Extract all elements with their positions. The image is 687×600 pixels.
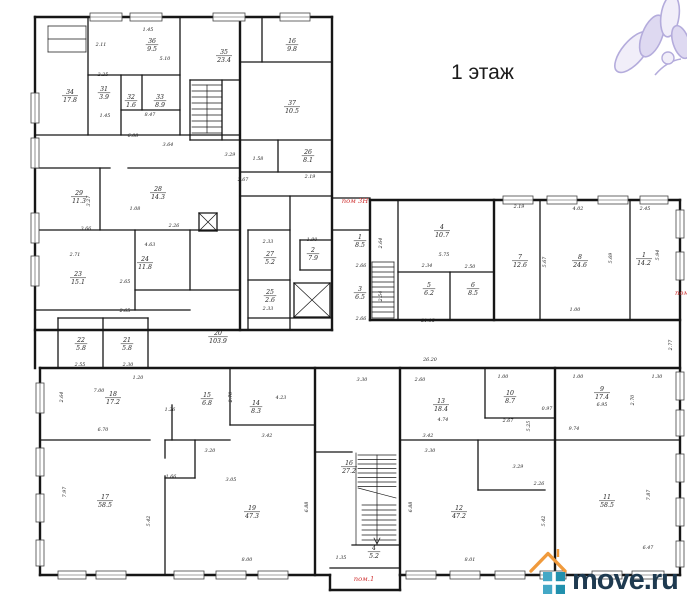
dimension-label: 6.88 [408, 502, 414, 513]
room-label: 18.5 [354, 234, 367, 249]
room-number: 17 [101, 494, 109, 501]
dimension-label: 2.33 [262, 306, 274, 312]
room-number: 35 [220, 49, 228, 56]
dimension-label: 8.01 [465, 557, 476, 563]
dimension-label: 2.60 [414, 377, 426, 383]
room-area: 12.6 [513, 262, 527, 269]
room-label: 27.9 [307, 247, 320, 262]
dimension-label: 5.42 [146, 516, 152, 527]
dimension-label: 3.29 [513, 464, 524, 470]
dimension-label: 5.67 [542, 256, 548, 268]
room-label: 275.2 [264, 251, 277, 266]
dimension-label: 2.54 [378, 291, 384, 303]
dimension-label: 2.66 [355, 316, 367, 322]
dimension-label: 2.65 [119, 308, 131, 314]
dimension-label: 1.00 [573, 374, 584, 380]
dimension-label: 8.47 [145, 112, 157, 118]
dimension-label: 2.70 [630, 395, 636, 407]
room-area: 7.9 [308, 255, 318, 262]
room-area: 11.3 [72, 198, 86, 205]
dimension-label: 3.42 [423, 433, 434, 439]
dimension-label: 1.45 [100, 113, 111, 119]
dimension-label: 4.23 [275, 395, 287, 401]
floor-plan-page: 1 этаж 369.53523.4169.83417.8313.9321.63… [0, 0, 687, 600]
move-ru-logo-text: move.ru [572, 564, 678, 596]
dimension-label: 6.70 [98, 427, 109, 433]
room-number: 14 [252, 400, 260, 407]
room-label: 20103.9 [208, 330, 228, 345]
room-number: 19 [248, 505, 256, 512]
room-label: 3417.8 [62, 89, 78, 104]
room-area: 5.2 [265, 259, 275, 266]
room-number: 11 [603, 494, 611, 501]
move-ru-logo: move.ru [531, 549, 678, 596]
room-label: 108.7 [504, 390, 517, 405]
room-area: 103.9 [209, 338, 227, 345]
room-area: 17.8 [63, 97, 77, 104]
room-area: 18.4 [434, 406, 448, 413]
dimension-label: 0.97 [542, 406, 554, 412]
room-number: 1 [642, 252, 646, 259]
dimension-label: 2.34 [421, 263, 433, 269]
dimension-label: 2.11 [95, 42, 107, 48]
dimension-label: 2.26 [168, 223, 180, 229]
flower-watermark [609, 0, 687, 78]
dimension-label: 5.75 [439, 252, 450, 258]
dimension-label: 1.08 [130, 206, 141, 212]
room-label: 369.5 [146, 38, 159, 53]
room-label: 1758.5 [97, 494, 113, 509]
room-label: 1817.2 [105, 391, 121, 406]
room-number: 27 [265, 251, 274, 258]
room-label: 2814.3 [150, 186, 166, 201]
room-label: 148.3 [250, 400, 263, 415]
dimension-label: 3.05 [226, 477, 237, 483]
room-area: 8.3 [251, 408, 261, 415]
room-number: 21 [122, 337, 131, 344]
room-area: 8.1 [303, 157, 313, 164]
room-area: 47.3 [244, 513, 259, 520]
room-number: 29 [74, 190, 83, 197]
floor-plan-svg: 1 этаж 369.53523.4169.83417.8313.9321.63… [0, 0, 687, 600]
dimension-label: 2.64 [378, 238, 384, 250]
dimension-label: 4.02 [572, 206, 584, 212]
dimension-label: 2.26 [533, 481, 545, 487]
room-label: 225.8 [75, 337, 88, 352]
room-number: 20 [213, 330, 222, 337]
dimension-label: 1.45 [143, 27, 154, 33]
room-label: 313.9 [98, 86, 111, 101]
room-number: 13 [437, 398, 445, 405]
room-label: 1318.4 [433, 398, 449, 413]
floor-title: 1 этаж [451, 61, 514, 84]
room-number: 34 [66, 89, 74, 96]
dimension-label: 1.90 [307, 237, 318, 243]
room-area: 9.5 [147, 46, 157, 53]
room-area: 23.4 [216, 57, 231, 64]
stair-line [374, 538, 377, 544]
room-number: 25 [265, 289, 274, 296]
dimension-label: 2.66 [355, 263, 367, 269]
room-area: 5.8 [76, 345, 86, 352]
squares-icon [543, 572, 565, 594]
dimension-label: 2.70 [228, 392, 234, 404]
roof-icon [531, 554, 565, 572]
dimension-label: 2.65 [119, 279, 131, 285]
room-label: 114.2 [636, 252, 652, 267]
room-area: 17.2 [106, 399, 120, 406]
room-number: 7 [518, 254, 522, 261]
dimension-label: 5.94 [655, 250, 661, 261]
dimension-label: 2.77 [668, 339, 674, 352]
room-area: 6.2 [424, 290, 434, 297]
room-number: 6 [471, 282, 475, 289]
room-label: 268.1 [302, 149, 315, 164]
dimension-label: 7.00 [94, 388, 105, 394]
dimension-label: 6.47 [643, 545, 655, 551]
room-area: 24.6 [572, 262, 587, 269]
room-area: 8.5 [355, 242, 365, 249]
room-label: 56.2 [423, 282, 436, 297]
room-area: 2.6 [264, 297, 275, 304]
room-label: 1158.5 [599, 494, 615, 509]
dimension-label: 2.71 [69, 252, 81, 258]
dimension-label: 9.74 [569, 426, 580, 432]
room-label: 824.6 [572, 254, 588, 269]
dimension-label: 4.63 [144, 242, 156, 248]
dimension-label: 3.20 [205, 448, 216, 454]
room-area: 8.7 [505, 398, 515, 405]
room-number: 16 [288, 38, 296, 45]
room-number: 32 [127, 94, 135, 101]
red-annotation: пом 3Н [342, 197, 370, 205]
room-number: 4 [371, 545, 376, 552]
dimension-label: 2.25 [97, 72, 109, 78]
room-area: 8.9 [155, 102, 165, 109]
room-label: 252.6 [264, 289, 277, 304]
dimension-label: 7.87 [646, 489, 652, 501]
dimension-label: 1.58 [253, 156, 264, 162]
room-number: 31 [100, 86, 108, 93]
dimension-label: 2.33 [262, 239, 274, 245]
room-area: 6.5 [355, 294, 365, 301]
room-area: 3.9 [99, 94, 109, 101]
room-area: 15.1 [71, 279, 85, 286]
room-area: 47.2 [451, 513, 466, 520]
dimension-label: 2.67 [237, 177, 250, 183]
dimension-labels: 1.452.115.102.251.458.476.083.643.291.58… [59, 27, 674, 563]
dimension-label: 4.74 [437, 417, 449, 423]
dimension-label: 1.35 [336, 555, 347, 561]
room-area: 27.2 [341, 468, 356, 475]
room-number: 3 [358, 286, 362, 293]
stair-line [377, 538, 380, 544]
dimension-label: 3.42 [262, 433, 273, 439]
room-label: 68.5 [467, 282, 480, 297]
room-number: 28 [153, 186, 162, 193]
room-label: 215.8 [121, 337, 134, 352]
dimension-label: 2.64 [59, 392, 65, 404]
red-annotation: пом [675, 289, 687, 297]
room-number: 9 [600, 386, 604, 393]
dimension-label: 21.15 [420, 318, 435, 324]
dimension-label: 7.97 [62, 486, 68, 498]
dimension-label: 5.69 [608, 253, 614, 264]
dimension-label: 8.00 [242, 557, 253, 563]
room-label: 36.5 [354, 286, 367, 301]
dimension-label: 6.08 [128, 133, 139, 139]
room-area: 6.8 [202, 400, 212, 407]
room-number: 16 [345, 460, 353, 467]
room-number: 10 [506, 390, 514, 397]
room-area: 1.6 [126, 102, 136, 109]
room-label: 3710.5 [284, 100, 300, 115]
dimension-label: 1.26 [165, 407, 176, 413]
room-area: 14.2 [637, 260, 651, 267]
dimension-label: 5.25 [526, 421, 532, 432]
room-number: 33 [156, 94, 164, 101]
room-label: 321.6 [125, 94, 138, 109]
room-label: 1947.3 [244, 505, 260, 520]
room-number: 24 [140, 256, 149, 263]
room-label: 156.8 [201, 392, 214, 407]
room-number: 22 [76, 337, 85, 344]
room-label: 3523.4 [216, 49, 232, 64]
room-area: 5.2 [369, 553, 379, 560]
room-number: 12 [455, 505, 463, 512]
dimension-label: 1.00 [498, 374, 509, 380]
dimension-label: 1.66 [166, 474, 177, 480]
room-label: 45.2 [368, 545, 381, 560]
dimension-label: 3.30 [357, 377, 368, 383]
room-number: 5 [427, 282, 431, 289]
room-label: 338.9 [154, 94, 167, 109]
room-number: 8 [578, 254, 582, 261]
dimension-label: 3.64 [163, 142, 174, 148]
room-area: 58.5 [600, 502, 614, 509]
room-label: 169.8 [286, 38, 299, 53]
red-annotation: пом.1 [354, 575, 375, 583]
dimension-label: 5.10 [160, 56, 171, 62]
room-area: 11.8 [138, 264, 152, 271]
room-area: 5.8 [122, 345, 132, 352]
room-label: 2411.8 [137, 256, 153, 271]
room-number: 36 [148, 38, 156, 45]
dimension-label: 1.30 [652, 374, 663, 380]
room-label: 1627.2 [341, 460, 357, 475]
room-number: 37 [288, 100, 296, 107]
room-area: 58.5 [98, 502, 112, 509]
dimension-label: 26.20 [422, 357, 437, 363]
room-area: 14.3 [151, 194, 165, 201]
dimension-label: 6.95 [597, 402, 608, 408]
dimension-label: 2.50 [464, 264, 476, 270]
room-number: 1 [358, 234, 362, 241]
dimension-label: 1.20 [133, 375, 144, 381]
room-number: 23 [73, 271, 82, 278]
room-area: 10.7 [435, 232, 449, 239]
room-label: 712.6 [512, 254, 528, 269]
dimension-label: 2.19 [513, 204, 525, 210]
room-label: 2315.1 [70, 271, 86, 286]
room-number: 26 [303, 149, 312, 156]
room-label: 1247.2 [451, 505, 467, 520]
dimension-label: 1.00 [570, 307, 581, 313]
room-area: 10.5 [285, 108, 299, 115]
room-number: 2 [310, 247, 315, 254]
room-area: 17.4 [595, 394, 609, 401]
dimension-label: 3.30 [425, 448, 436, 454]
room-label: 917.4 [594, 386, 610, 401]
dimension-label: 5.42 [541, 516, 547, 527]
dimension-label: 3.29 [225, 152, 236, 158]
room-area: 9.8 [287, 46, 297, 53]
room-label: 2911.3 [71, 190, 87, 205]
dimension-label: 2.45 [639, 206, 651, 212]
room-area: 8.5 [468, 290, 478, 297]
room-label: 410.7 [434, 224, 450, 239]
dimension-label: 2.30 [122, 362, 134, 368]
dimension-label: 3.27 [86, 195, 92, 207]
dimension-label: 2.67 [502, 418, 515, 424]
dimension-label: 2.19 [304, 174, 316, 180]
room-number: 4 [439, 224, 444, 231]
room-number: 15 [203, 392, 211, 399]
dimension-label: 2.55 [74, 362, 86, 368]
dimension-label: 6.88 [304, 502, 310, 513]
dimension-label: 3.66 [81, 226, 92, 232]
room-number: 18 [109, 391, 117, 398]
